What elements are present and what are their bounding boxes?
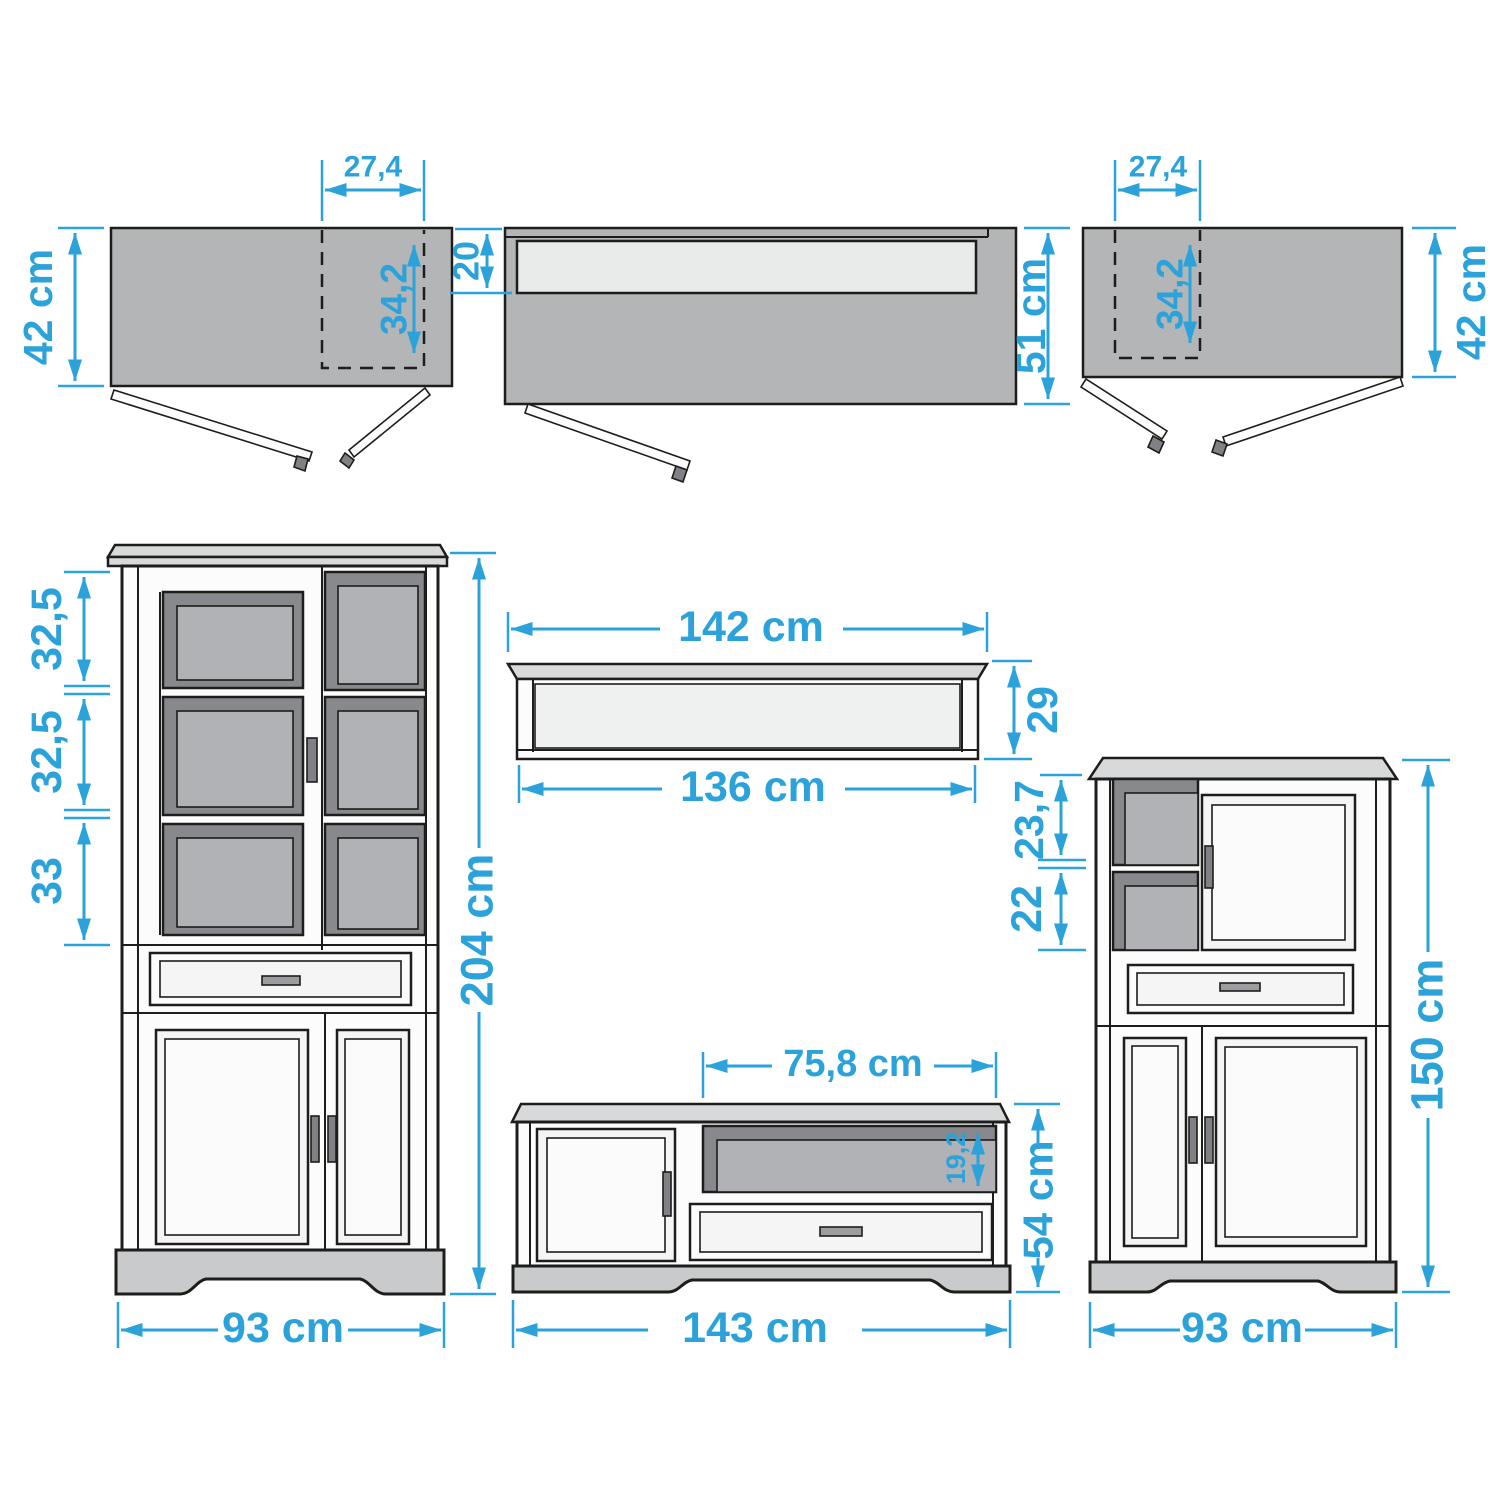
door-handle [1205,1117,1213,1163]
dim-depth: 51 cm [1008,258,1054,374]
dim-height: 150 cm [1402,959,1453,1112]
crown-molding [512,1104,1009,1122]
dim-width: 143 cm [682,1304,828,1352]
dim-niche-width: 75,8 cm [783,1043,922,1085]
dim-width: 93 cm [1181,1304,1303,1352]
glass-door-handle [307,738,317,782]
dim-height: 204 cm [452,854,503,1007]
door-handle [328,1116,336,1162]
dim-door-depth: 34,2 [1150,258,1191,330]
open-niches [1113,779,1198,950]
crown-molding [108,545,447,557]
crown-molding [508,664,987,679]
glass-door-panels [163,592,303,935]
drawer-handle [262,976,300,985]
dim-width: 93 cm [222,1304,344,1352]
open-shelf-niches [325,572,425,935]
dim-height: 54 cm [1015,1140,1062,1259]
shelf-inset [535,684,960,748]
door-handle [663,1172,671,1216]
dim-height: 29 [1019,686,1067,734]
dim-door-width: 27,4 [1129,151,1188,184]
dim-top-depth: 20 [446,241,487,281]
furniture-dimension-diagram: 27,4 34,2 42 cm 20 51 cm 27,4 34,2 [0,0,1500,1500]
dim-niche-height: 19,2 [941,1132,971,1185]
door-handle [311,1116,319,1162]
dim-inner-width: 136 cm [680,763,826,811]
door-handle [1189,1117,1197,1163]
door-handle [1205,846,1213,888]
dim-depth: 42 cm [1448,244,1494,360]
dim-section-middle: 32,5 [23,710,71,794]
dim-depth: 42 cm [15,249,61,365]
dim-section-top: 32,5 [23,587,71,671]
dim-section-bottom: 33 [23,857,71,905]
dim-door-depth: 34,2 [374,263,415,335]
drawer-handle [1220,983,1260,991]
crown-molding [1089,758,1397,779]
dim-niche-top: 23,7 [1006,780,1052,860]
dim-door-width: 27,4 [344,151,403,184]
dim-niche-bottom: 22 [1003,885,1051,933]
dim-outer-width: 142 cm [678,603,824,651]
drawer-handle [820,1227,862,1236]
